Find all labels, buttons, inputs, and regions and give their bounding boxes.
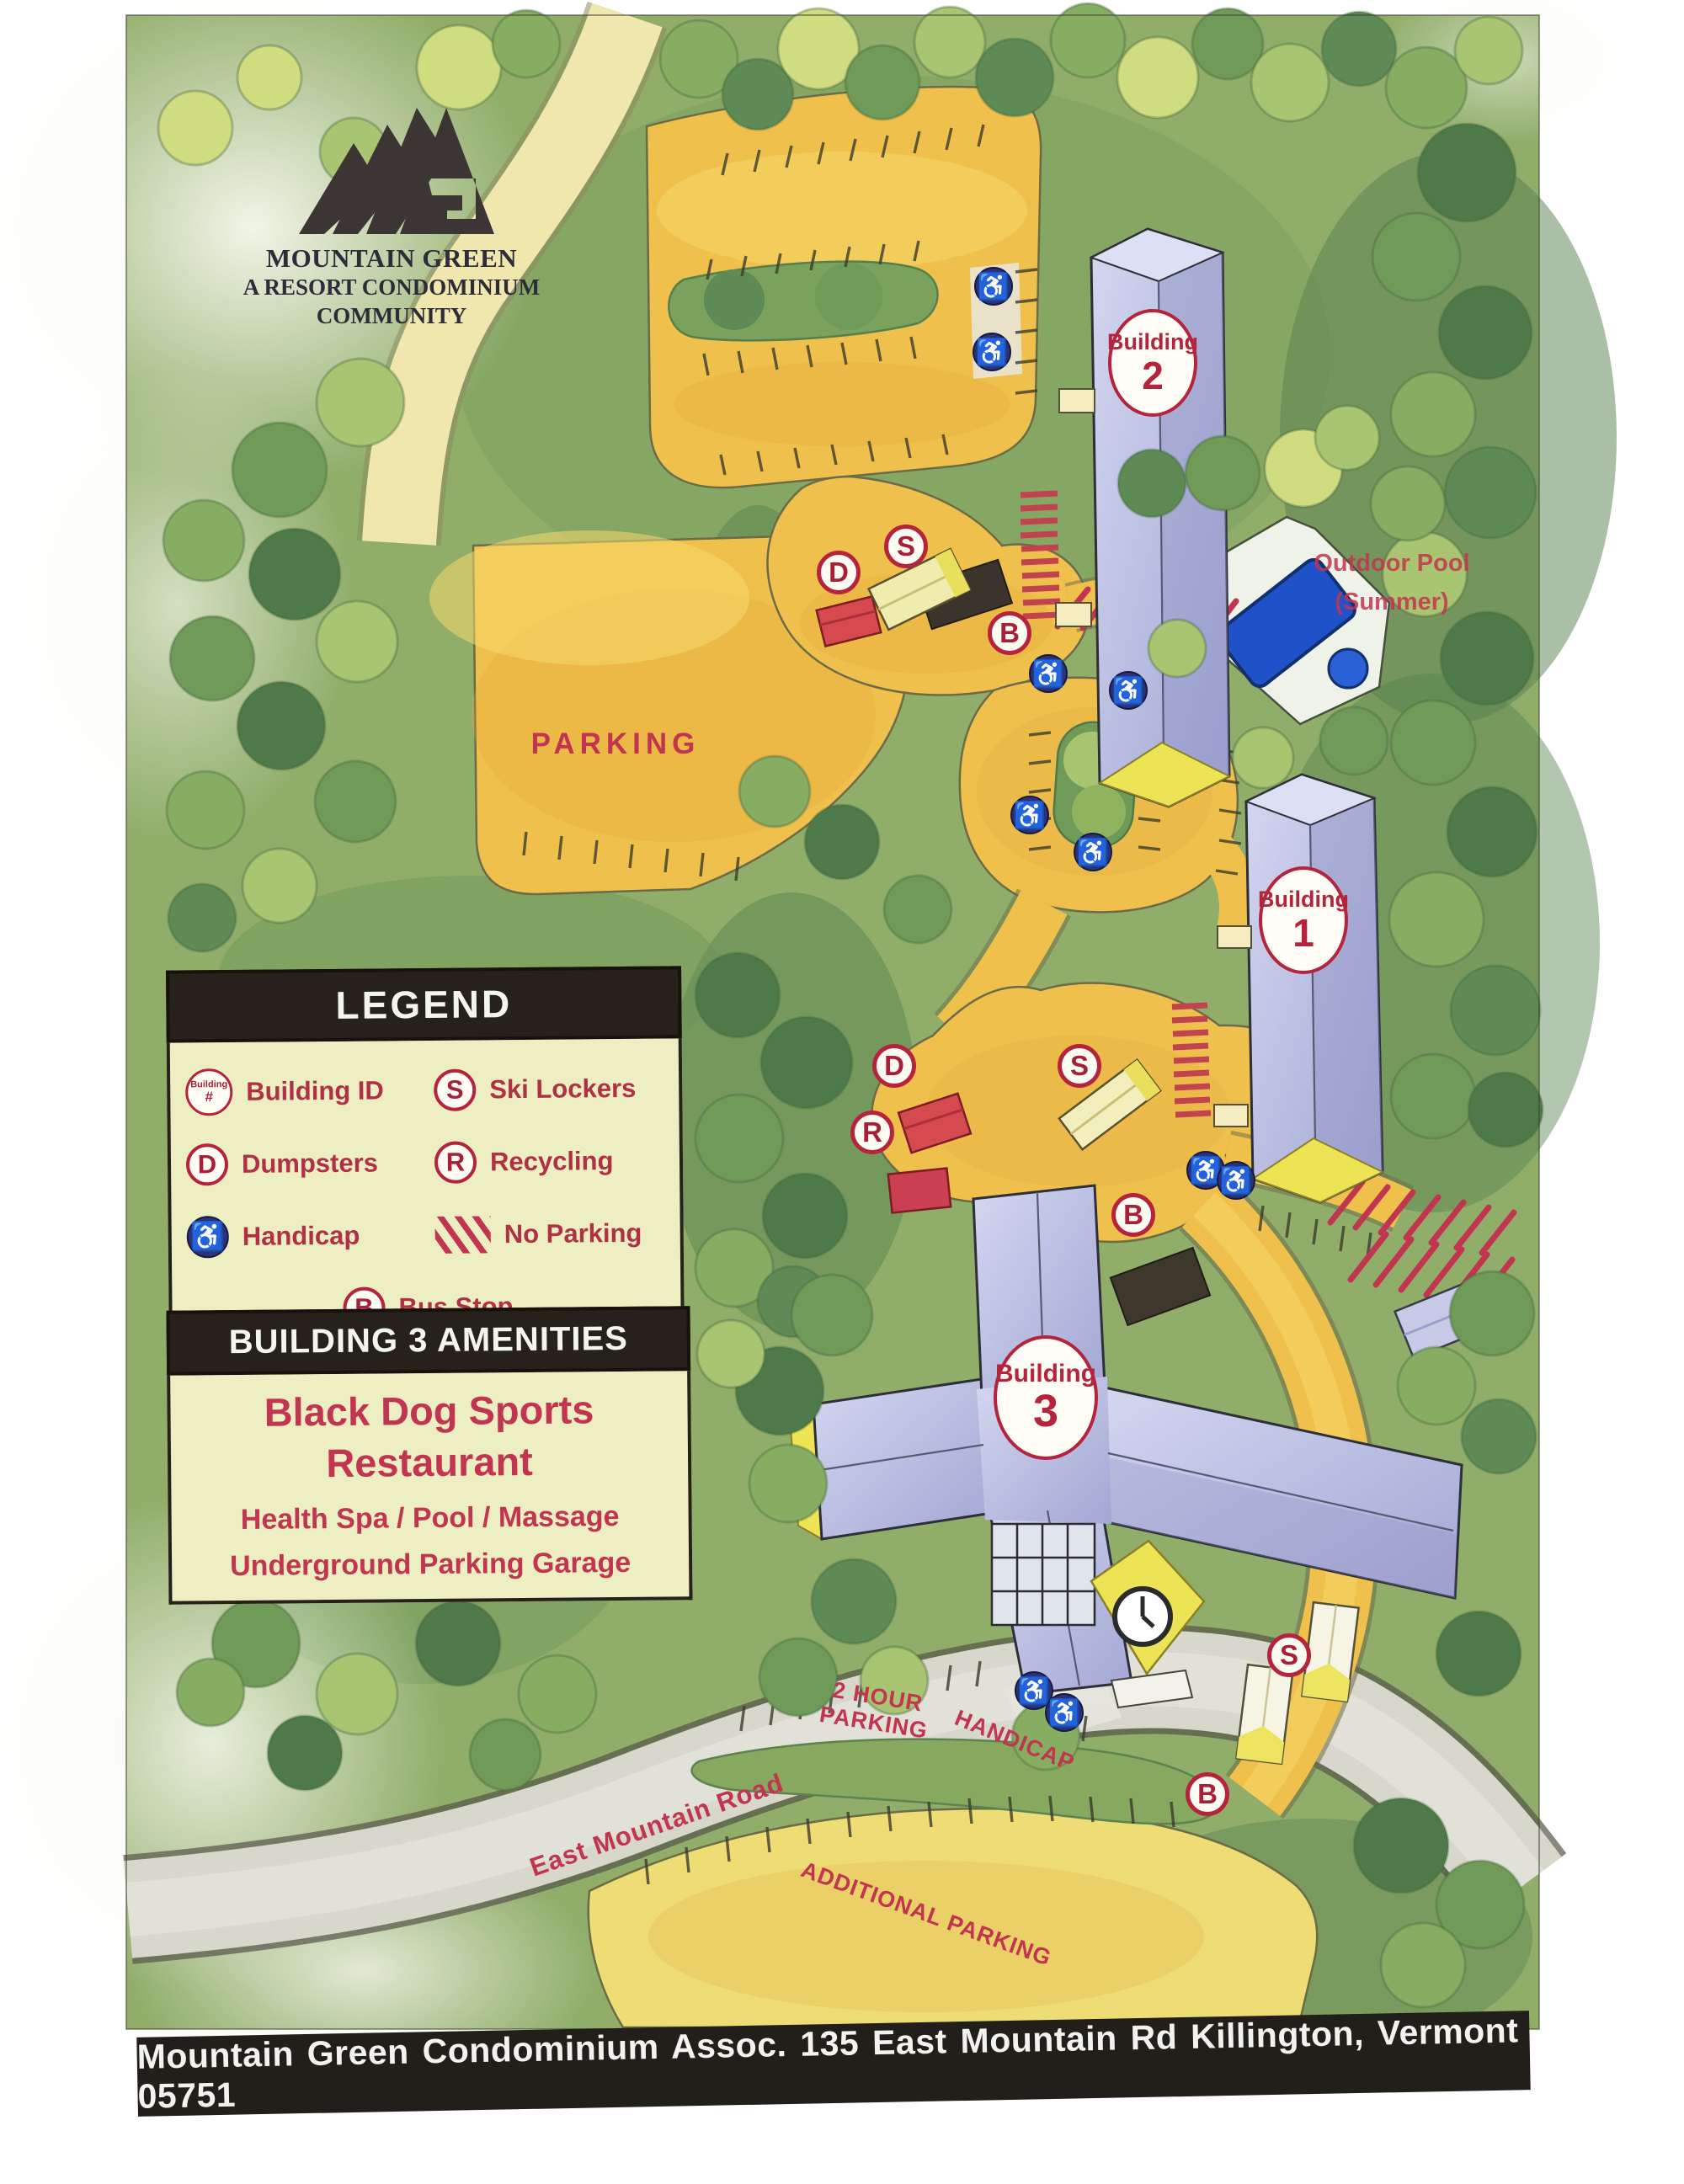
logo: MOUNTAIN GREEN A RESORT CONDOMINIUM COMM… xyxy=(202,93,581,331)
dumpster-marker-north: D xyxy=(817,551,861,594)
outdoor-pool-label: Outdoor Pool (Summer) xyxy=(1295,544,1489,622)
amenity-line: Underground Parking Garage xyxy=(177,1545,684,1584)
bus-stop-marker-north: B xyxy=(988,611,1031,655)
handicap-icon: ♿ xyxy=(1217,1161,1255,1200)
outdoor-pool-label-line2: (Summer) xyxy=(1295,583,1489,621)
building-2-id-badge: Building 2 xyxy=(1108,309,1197,417)
legend-item-ski-lockers: S Ski Lockers xyxy=(434,1052,668,1126)
ski-locker-marker-south: S xyxy=(1267,1633,1311,1677)
resort-map-page: MOUNTAIN GREEN A RESORT CONDOMINIUM COMM… xyxy=(0,0,1684,2184)
logo-line-2: A RESORT CONDOMINIUM xyxy=(202,274,581,302)
handicap-icon: ♿ xyxy=(187,1216,229,1258)
legend-item-dumpsters: D Dumpsters xyxy=(186,1127,435,1201)
handicap-icon: ♿ xyxy=(974,267,1013,306)
dumpster-icon: D xyxy=(186,1143,228,1185)
logo-line-3: COMMUNITY xyxy=(202,302,581,331)
legend-item-recycling: R Recycling xyxy=(434,1124,669,1198)
building-1-id-number: 1 xyxy=(1292,913,1314,953)
outdoor-pool-label-line1: Outdoor Pool xyxy=(1295,544,1489,583)
amenities-title: BUILDING 3 AMENITIES xyxy=(166,1306,690,1375)
legend-box: LEGEND Building # Building ID S Ski Lock… xyxy=(166,966,685,1357)
legend-item-no-parking: No Parking xyxy=(434,1196,669,1270)
bus-stop-marker-central: B xyxy=(1111,1193,1155,1237)
handicap-icon: ♿ xyxy=(1029,654,1068,693)
mountain-green-logo-icon xyxy=(274,93,509,234)
recycling-marker: R xyxy=(850,1111,894,1154)
building-1-id-label: Building xyxy=(1258,887,1349,913)
legend-title: LEGEND xyxy=(166,966,682,1042)
building-3-id-number: 3 xyxy=(1033,1388,1058,1436)
handicap-icon: ♿ xyxy=(973,333,1011,371)
parking-label: PARKING xyxy=(502,727,729,761)
handicap-icon: ♿ xyxy=(1045,1693,1084,1732)
handicap-icon: ♿ xyxy=(1010,796,1049,834)
building-3-id-badge: Building 3 xyxy=(994,1335,1098,1460)
ski-locker-icon: S xyxy=(434,1068,476,1111)
logo-line-1: MOUNTAIN GREEN xyxy=(202,243,581,274)
no-parking-icon xyxy=(435,1216,491,1254)
building-3-amenities-box: BUILDING 3 AMENITIES Black Dog Sports Re… xyxy=(166,1306,692,1604)
building-id-icon: Building # xyxy=(185,1068,232,1116)
building-3-id-label: Building xyxy=(995,1360,1096,1388)
amenity-line: Restaurant xyxy=(176,1434,684,1489)
handicap-icon: ♿ xyxy=(1074,833,1112,871)
ski-locker-marker-central: S xyxy=(1058,1044,1101,1088)
bus-stop-marker-south: B xyxy=(1186,1772,1229,1816)
amenity-line: Black Dog Sports xyxy=(175,1382,683,1438)
legend-item-handicap: ♿ Handicap xyxy=(186,1199,435,1274)
recycling-icon: R xyxy=(434,1141,477,1183)
building-2-id-label: Building xyxy=(1107,330,1198,355)
handicap-icon: ♿ xyxy=(1109,671,1148,710)
dumpster-marker-central: D xyxy=(872,1044,916,1088)
ski-locker-marker-north: S xyxy=(884,525,928,568)
building-2-id-number: 2 xyxy=(1142,355,1164,396)
building-1-id-badge: Building 1 xyxy=(1259,866,1348,974)
amenity-line: Health Spa / Pool / Massage xyxy=(176,1500,683,1538)
legend-item-building-id: Building # Building ID xyxy=(185,1054,434,1129)
